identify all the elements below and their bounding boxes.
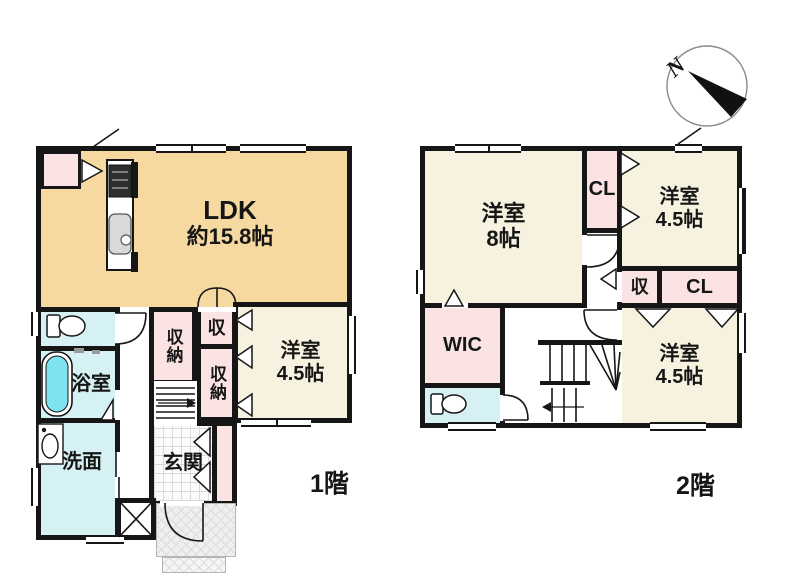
window-marker bbox=[650, 422, 706, 431]
room-ldk-label: LDK 約15.8帖 bbox=[150, 196, 310, 250]
room-bedroom-8: 洋室 8帖 bbox=[420, 146, 587, 308]
room-washroom-label: 洗面 bbox=[62, 451, 102, 473]
room-entrance-label: 玄関 bbox=[163, 452, 203, 474]
walk-in-closet-label: WIC bbox=[443, 334, 482, 356]
closet-a: CL bbox=[582, 146, 622, 233]
closet-storage-small-2f-label: 収 bbox=[631, 277, 649, 297]
opening-wic bbox=[442, 303, 468, 308]
room-bedroom-ne-size: 4.5帖 bbox=[656, 209, 704, 231]
stairs-2f-box bbox=[538, 340, 622, 428]
window-marker bbox=[737, 188, 746, 254]
window-marker bbox=[156, 144, 226, 153]
window-marker bbox=[675, 144, 702, 153]
pantry-closet bbox=[41, 151, 81, 189]
window-marker bbox=[31, 312, 40, 336]
closet-storage-a-label: 収納 bbox=[163, 328, 182, 364]
closet-storage-b: 収納 bbox=[196, 344, 237, 422]
closet-b: CL bbox=[657, 266, 742, 308]
room-bedroom-1f-name: 洋室 bbox=[281, 340, 321, 362]
closet-storage-b-label: 収納 bbox=[207, 365, 226, 401]
opening-ldk-doubledoor bbox=[198, 307, 236, 312]
exterior-wall-patch bbox=[503, 423, 541, 428]
shaft-box bbox=[116, 498, 156, 540]
room-bathroom: 浴室 bbox=[36, 346, 120, 423]
room-bedroom-ne-name: 洋室 bbox=[660, 186, 700, 208]
room-ldk-name: LDK bbox=[150, 196, 310, 225]
door-arc-bedroom-8 bbox=[587, 235, 620, 267]
door-arc-bedroom-se bbox=[584, 310, 617, 340]
closet-storage-a: 収納 bbox=[149, 307, 197, 385]
room-bedroom-1f-size: 4.5帖 bbox=[277, 363, 325, 385]
window-marker bbox=[240, 144, 306, 153]
door-mark-storage-small-2f bbox=[601, 269, 616, 289]
room-bathroom-label: 浴室 bbox=[71, 373, 111, 395]
awning-window-mark-1f bbox=[93, 129, 119, 147]
window-marker bbox=[241, 418, 311, 427]
entrance-step bbox=[162, 557, 226, 573]
opening-toilet-2f bbox=[500, 395, 505, 421]
closet-storage-small-2f: 収 bbox=[617, 266, 662, 308]
room-entrance: 玄関 bbox=[149, 421, 217, 506]
opening-bedroom-se bbox=[617, 310, 622, 340]
opening-hall-entrance bbox=[155, 421, 183, 426]
opening-bedroom-8 bbox=[582, 235, 587, 265]
stairs-1f-box bbox=[149, 381, 197, 426]
room-bedroom-8-size: 8帖 bbox=[486, 227, 520, 252]
closet-storage-small-1f: 収 bbox=[196, 307, 237, 349]
closet-storage-small-1f-label: 収 bbox=[208, 318, 226, 338]
opening-storage-small-2f bbox=[617, 272, 622, 302]
window-marker bbox=[86, 535, 124, 544]
closet-a-label: CL bbox=[589, 178, 616, 200]
floor1-label: 1階 bbox=[310, 464, 349, 500]
floor2-label: 2階 bbox=[676, 466, 715, 502]
room-bedroom-se-name: 洋室 bbox=[660, 343, 700, 365]
room-bedroom-ne: 洋室 4.5帖 bbox=[617, 146, 742, 271]
kitchen-counter bbox=[106, 159, 134, 271]
door-arc-toilet-2f bbox=[503, 395, 528, 420]
shoe-closet bbox=[212, 421, 237, 506]
window-marker bbox=[455, 144, 521, 153]
opening-ldk-hall bbox=[120, 307, 149, 312]
window-marker bbox=[737, 313, 746, 353]
opening-bath bbox=[115, 390, 120, 420]
room-bedroom-1f: 洋室 4.5帖 bbox=[233, 302, 352, 423]
window-marker bbox=[448, 422, 496, 431]
room-washroom: 洗面 bbox=[36, 418, 120, 540]
window-marker bbox=[31, 468, 40, 506]
room-bedroom-se-size: 4.5帖 bbox=[656, 366, 704, 388]
walk-in-closet: WIC bbox=[420, 303, 505, 388]
closet-b-label: CL bbox=[686, 276, 713, 298]
opening-front-door bbox=[160, 501, 204, 506]
entrance-porch bbox=[156, 503, 236, 557]
window-marker bbox=[416, 270, 425, 294]
room-toilet-1f bbox=[36, 307, 120, 351]
room-bedroom-se: 洋室 4.5帖 bbox=[617, 303, 742, 428]
room-bedroom-8-name: 洋室 bbox=[481, 202, 525, 227]
room-ldk-size: 約15.8帖 bbox=[150, 225, 310, 250]
awning-window-mark-2f bbox=[678, 128, 701, 144]
window-marker bbox=[347, 316, 356, 374]
floor-plan: LDK 約15.8帖 浴室 洗面 収納 収 収納 洋室 4.5帖 玄関 bbox=[0, 0, 800, 584]
opening-washroom bbox=[115, 452, 120, 498]
opening-toilet-1f bbox=[115, 313, 120, 344]
compass-north-label: N bbox=[661, 43, 701, 82]
compass-needle bbox=[688, 71, 747, 117]
